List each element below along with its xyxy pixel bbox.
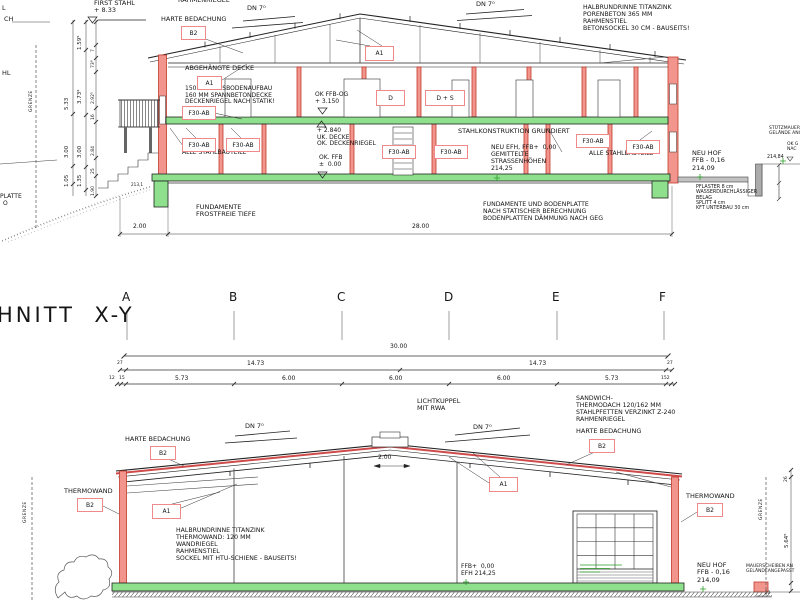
tag-a1-bottom-right: A1 (489, 477, 518, 492)
grid-axis-lines (127, 311, 664, 340)
section-title: HNITT X-Y (0, 303, 135, 327)
og-floor-slab (166, 117, 668, 124)
tag-door-d-s: D + S (425, 90, 465, 106)
architectural-drawing: HNITT X-Y FIRST STAHL+ 8.33HARTE BEDACHU… (0, 0, 800, 600)
tag-f30-ab-3: F30-AB (226, 138, 260, 152)
tag-b2-thermowand-left: B2 (77, 498, 103, 512)
thermowand-left-wall (120, 471, 127, 583)
tag-b2-thermowand-right: B2 (697, 503, 723, 517)
lichtkuppel (372, 437, 408, 447)
bush-sketch (55, 555, 112, 599)
tag-a1-bottom-left: A1 (152, 504, 181, 519)
thermowand-right-wall (672, 477, 679, 583)
foundation-left (154, 181, 168, 207)
tag-f30-ab-7: F30-AB (626, 140, 660, 154)
tag-f30-ab-2: F30-AB (182, 138, 216, 152)
tag-f30-ab-5: F30-AB (434, 145, 468, 159)
tag-f30-ab-4: F30-AB (382, 145, 416, 159)
foundation-right (652, 181, 668, 198)
ground-hatch-strip (112, 592, 772, 597)
tag-f30-ab-6: F30-AB (576, 134, 610, 148)
right-wall-top-section (668, 57, 678, 183)
tag-f30-ab-1: F30-AB (182, 106, 216, 120)
tag-b2-roof-top: B2 (181, 26, 206, 40)
tag-b2-harte-bottom-left: B2 (150, 446, 176, 460)
bottom-floor-slab (112, 583, 684, 591)
tag-b2-harte-bottom-right: B2 (589, 439, 615, 453)
tag-a1-ceiling: A1 (197, 76, 222, 90)
tag-door-d: D (376, 90, 405, 106)
tag-a1-roof-top: A1 (365, 46, 394, 61)
